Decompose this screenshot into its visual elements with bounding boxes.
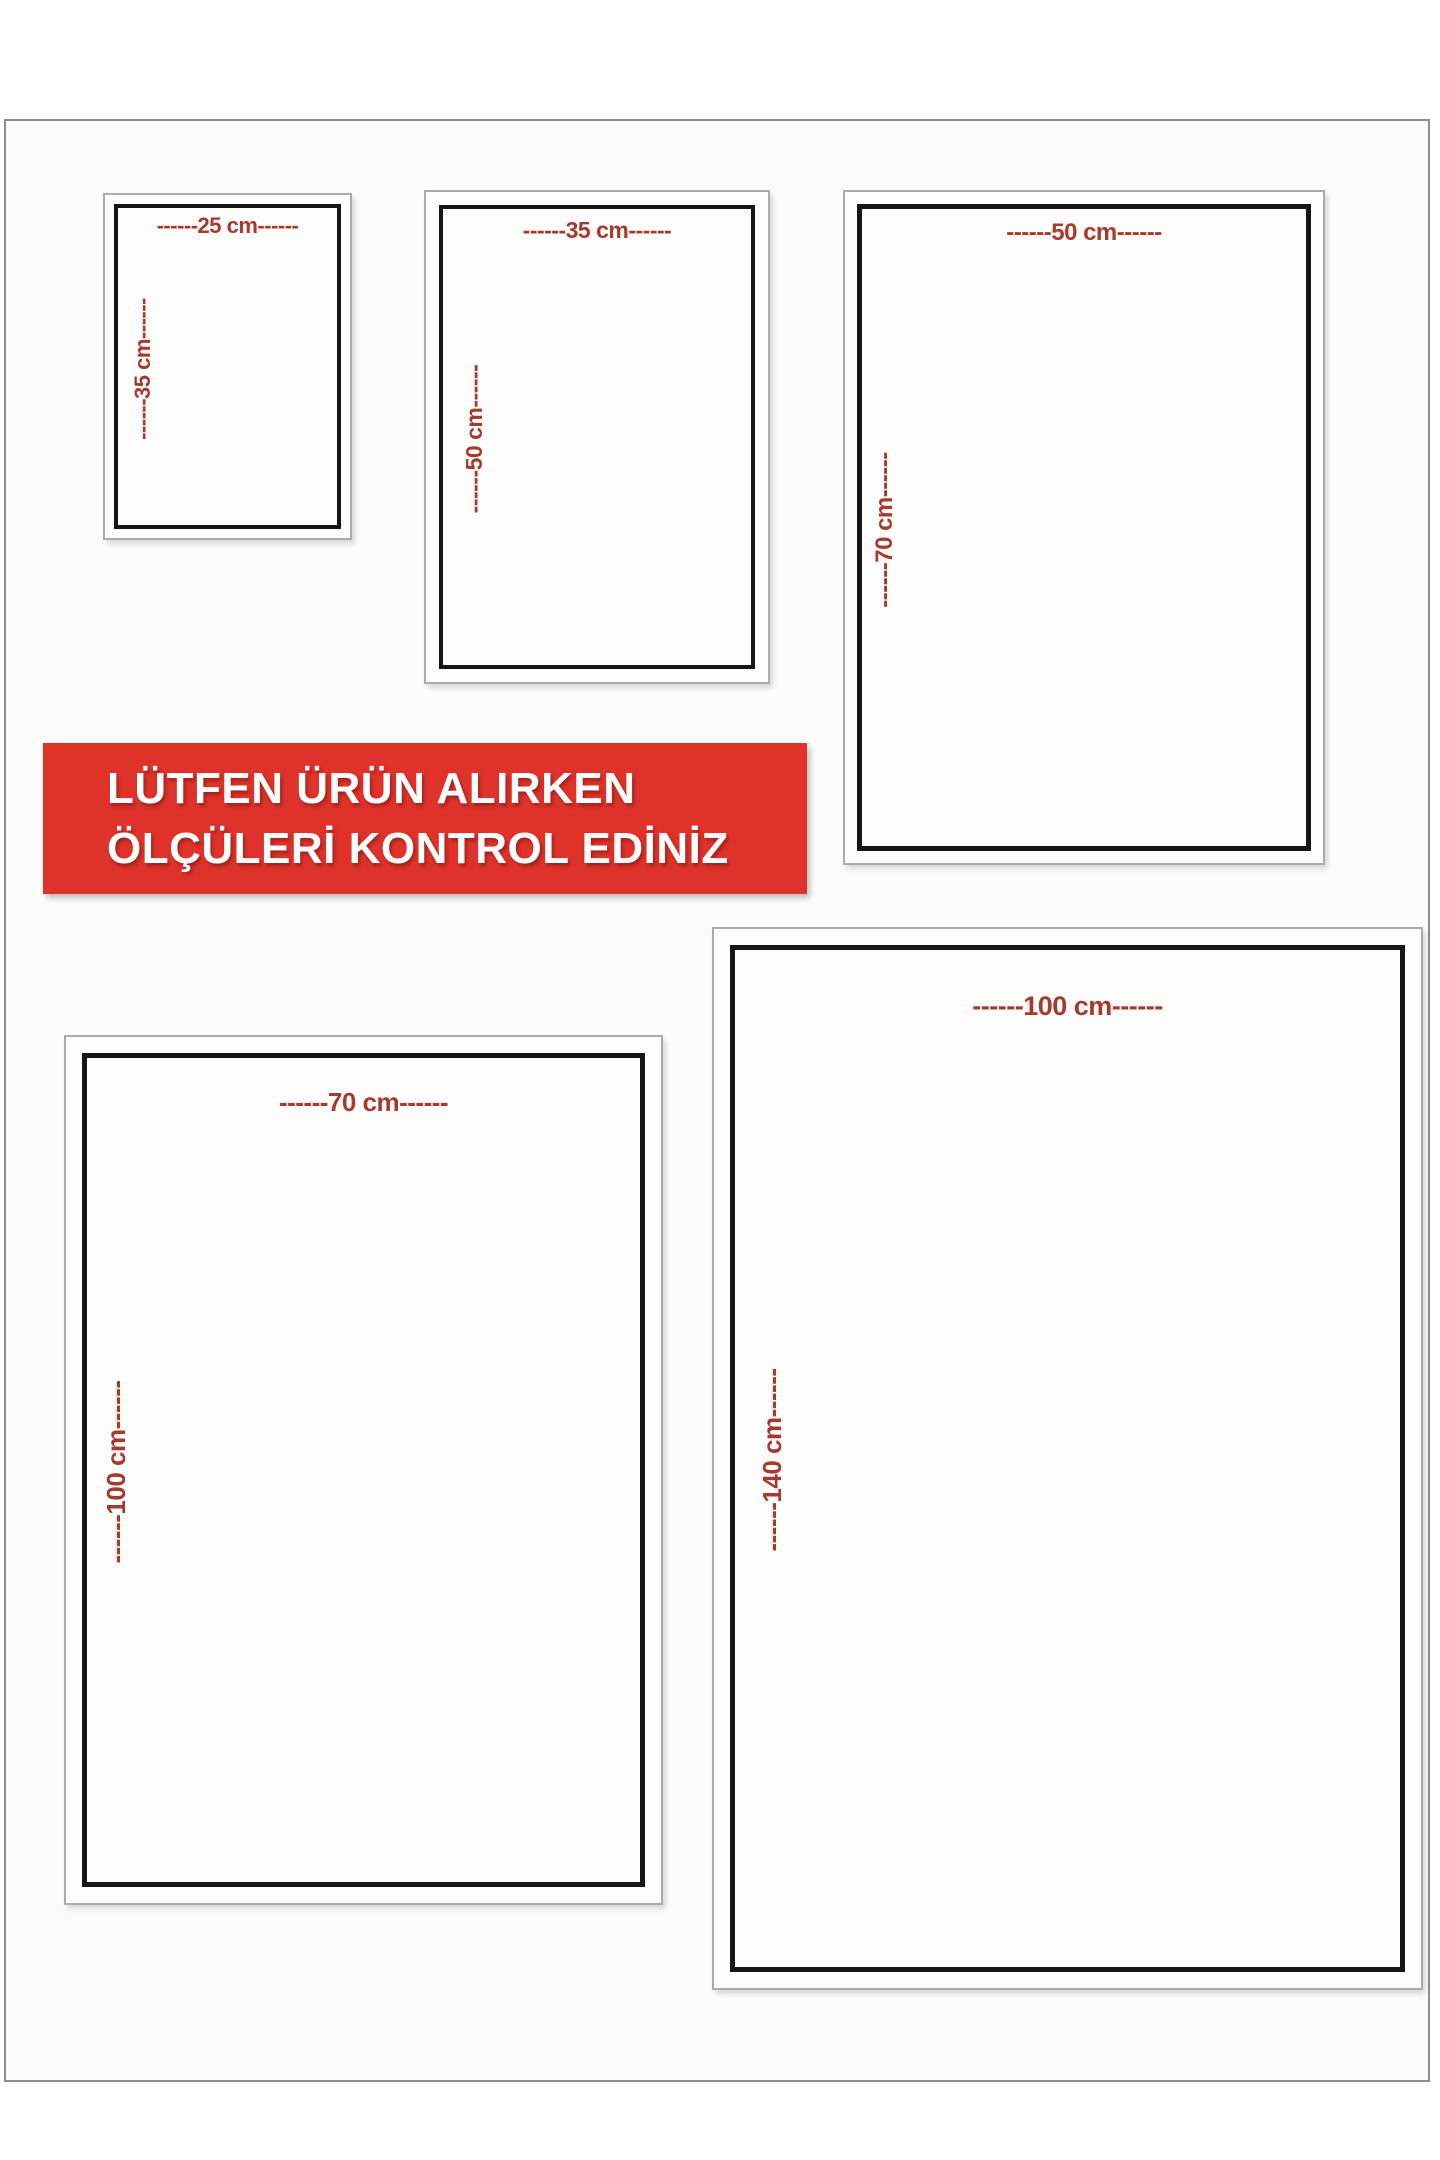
- size-box-35x50: ------35 cm------ ------50 cm------: [424, 190, 770, 684]
- size-box-inner-frame: [857, 204, 1311, 851]
- size-box-25x35: ------25 cm------ ------35 cm------: [103, 193, 352, 540]
- size-box-inner-frame: [82, 1053, 645, 1887]
- height-dimension-label: ------100 cm------: [100, 1302, 132, 1642]
- height-dimension-label: ------50 cm------: [458, 269, 490, 609]
- size-box-70x100: ------70 cm------ ------100 cm------: [64, 1035, 663, 1905]
- product-size-chart: ------25 cm------ ------35 cm------ ----…: [0, 0, 1440, 2160]
- width-dimension-label: ------70 cm------: [66, 1087, 661, 1118]
- width-dimension-label: ------50 cm------: [845, 219, 1323, 247]
- notice-banner-line-2: ÖLÇÜLERİ KONTROL EDİNİZ: [107, 819, 807, 879]
- notice-banner: LÜTFEN ÜRÜN ALIRKEN ÖLÇÜLERİ KONTROL EDİ…: [43, 743, 807, 894]
- height-dimension-label: ------140 cm------: [756, 1290, 788, 1630]
- height-dimension-label: ------70 cm------: [869, 360, 901, 700]
- width-dimension-label: ------100 cm------: [714, 991, 1421, 1022]
- size-box-100x140: ------100 cm------ ------140 cm------: [712, 927, 1423, 1990]
- height-dimension-label: ------35 cm------: [127, 199, 159, 539]
- size-box-50x70: ------50 cm------ ------70 cm------: [843, 190, 1325, 865]
- width-dimension-label: ------35 cm------: [426, 217, 768, 244]
- notice-banner-line-1: LÜTFEN ÜRÜN ALIRKEN: [107, 759, 807, 819]
- size-box-inner-frame: [730, 945, 1405, 1972]
